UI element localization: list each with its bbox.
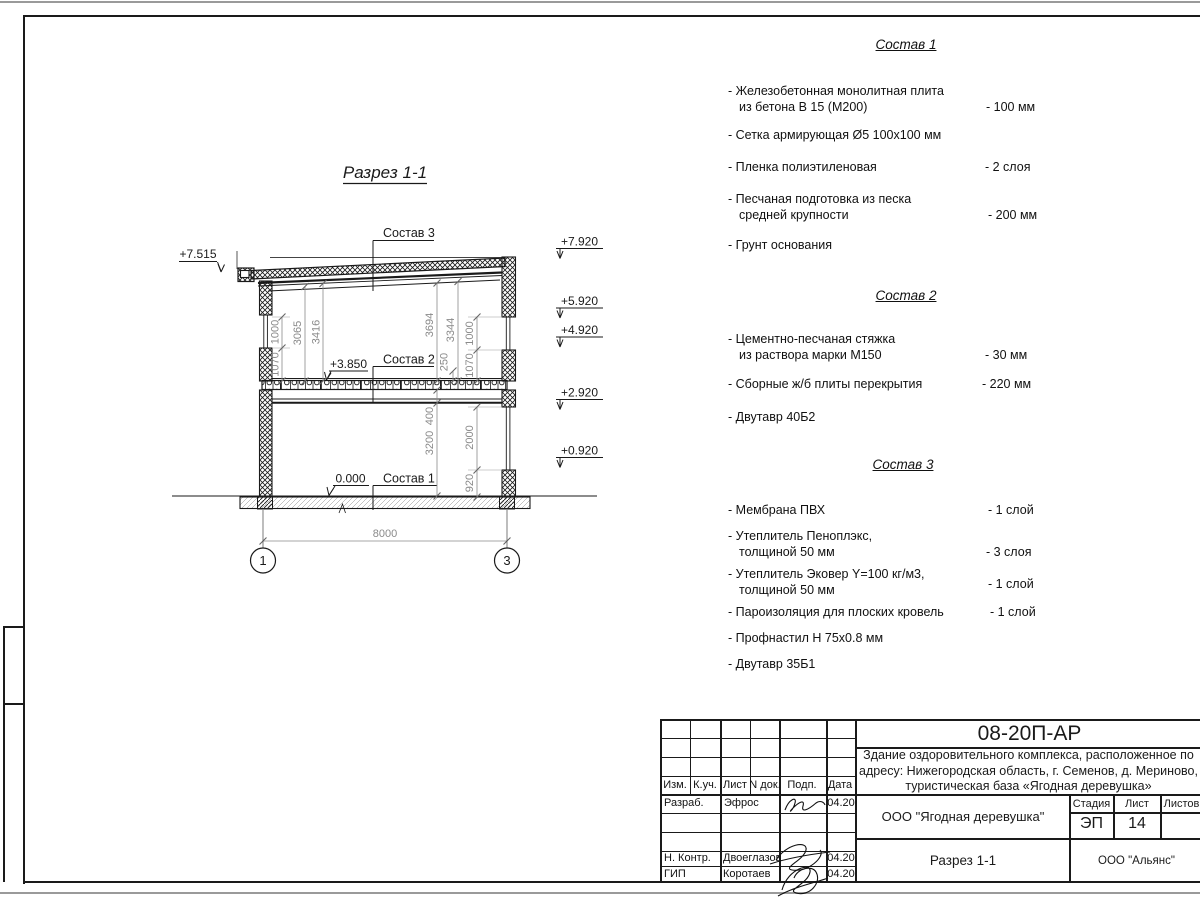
elev-4920: +4.920 (561, 323, 598, 337)
list-item: - Цементно-песчаная стяжка (728, 332, 895, 346)
list-item: - Песчаная подготовка из песка (728, 192, 911, 206)
elev-2920: +2.920 (561, 386, 598, 400)
list-item: средней крупности (739, 208, 849, 222)
sheet-label: Лист (1114, 798, 1160, 810)
label-sostav-3: Состав 3 (383, 226, 435, 240)
col-izm: Изм. (663, 779, 687, 791)
date-razrab: 04.20 (827, 797, 855, 809)
list-item-value: - 3 слоя (986, 545, 1031, 559)
list-item-value: - 1 слой (990, 605, 1036, 619)
list-item: толщиной 50 мм (739, 583, 835, 597)
project-line-3: туристическая база «Ягодная деревушка» (691, 779, 1200, 793)
svg-text:250: 250 (439, 353, 451, 371)
svg-text:3694: 3694 (424, 313, 436, 337)
elev-zero: 0.000 (335, 472, 365, 486)
list-item: - Железобетонная монолитная плита (728, 84, 944, 98)
list-item-value: - 1 слой (988, 503, 1034, 517)
list-item-value: - 220 мм (982, 377, 1031, 391)
svg-text:3200: 3200 (424, 431, 436, 455)
sheet-number: 14 (1114, 815, 1160, 833)
right-window-2f (506, 317, 510, 350)
roof (238, 258, 505, 291)
list-item: - Утеплитель Эковер Y=100 кг/м3, (728, 567, 924, 581)
list-item: из раствора марки М150 (739, 348, 882, 362)
role-nkontr: Н. Контр. (664, 852, 711, 864)
list-item-value: - 1 слой (988, 577, 1034, 591)
list-item: - Мембрана ПВХ (728, 503, 825, 517)
composition-2-title: Состав 2 (840, 288, 972, 303)
footing-left (258, 497, 273, 509)
list-item: - Грунт основания (728, 238, 832, 252)
svg-text:1070: 1070 (464, 353, 476, 377)
svg-text:2000: 2000 (464, 425, 476, 449)
list-item: - Сетка армирующая Ø5 100х100 мм (728, 128, 941, 142)
list-item-value: - 200 мм (988, 208, 1037, 222)
svg-text:Разрез 1-1: Разрез 1-1 (343, 163, 427, 182)
svg-text:920: 920 (464, 474, 476, 492)
composition-1-title: Состав 1 (840, 37, 972, 52)
elev-5920: +5.920 (561, 294, 598, 308)
list-item-value: - 100 мм (986, 100, 1035, 114)
role-gip: ГИП (664, 868, 686, 880)
contractor-org: ООО "Альянс" (1071, 855, 1200, 867)
svg-text:8000: 8000 (373, 528, 397, 540)
list-item: - Сборные ж/б плиты перекрытия (728, 377, 922, 391)
composition-3-title: Состав 3 (837, 457, 969, 472)
svg-text:3065: 3065 (292, 321, 304, 345)
drawing-sheet: Разрез 1-1 (0, 0, 1200, 900)
list-item-value: - 30 мм (985, 348, 1027, 362)
role-razrab: Разраб. (664, 797, 704, 809)
signature-razrab (782, 794, 828, 820)
list-item-value: - 2 слоя (985, 160, 1030, 174)
list-item: - Утеплитель Пеноплэкс, (728, 529, 872, 543)
svg-text:3416: 3416 (311, 320, 323, 344)
name-gip: Коротаев (723, 868, 771, 880)
list-item: из бетона В 15 (М200) (739, 100, 867, 114)
footing-right (500, 497, 515, 509)
svg-text:1070: 1070 (270, 352, 282, 376)
right-window-1f (506, 407, 510, 470)
floor-slab-2f (262, 379, 507, 403)
document-code: 08-20П-АР (857, 722, 1200, 746)
sheets-label: Листов (1161, 798, 1200, 810)
list-item: толщиной 50 мм (739, 545, 835, 559)
svg-text:3344: 3344 (445, 318, 457, 342)
elev-0920: +0.920 (561, 444, 598, 458)
drawing-title: Разрез 1-1 (343, 163, 427, 184)
list-item: - Пароизоляция для плоских кровель (728, 605, 944, 619)
elev-7515: +7.515 (179, 247, 216, 261)
project-line-2: адресу: Нижегородская область, г. Семено… (691, 764, 1200, 778)
stage-label: Стадия (1070, 798, 1113, 810)
right-wall (502, 257, 516, 497)
list-item: - Двутавр 35Б1 (728, 657, 815, 671)
client-name: ООО "Ягодная деревушка" (857, 809, 1069, 824)
list-item: - Двутавр 40Б2 (728, 410, 815, 424)
svg-text:1000: 1000 (270, 320, 282, 344)
sheet-title: Разрез 1-1 (857, 853, 1069, 868)
svg-text:1000: 1000 (464, 321, 476, 345)
elev-3850: +3.850 (330, 357, 367, 371)
list-item: - Пленка полиэтиленовая (728, 160, 877, 174)
axis-3: 3 (503, 553, 510, 568)
grid-axes: 1 3 (251, 510, 520, 573)
name-razrab: Эфрос (724, 797, 759, 809)
elev-7920: +7.920 (561, 235, 598, 249)
axis-1: 1 (259, 553, 266, 568)
project-line-1: Здание оздоровительного комплекса, распо… (691, 748, 1200, 762)
label-sostav-2: Состав 2 (383, 353, 435, 367)
list-item: - Профнастил Н 75х0.8 мм (728, 631, 883, 645)
left-window-2f (264, 315, 268, 348)
svg-text:400: 400 (424, 407, 436, 425)
signature-nkontr-gip (768, 838, 834, 898)
label-sostav-1: Состав 1 (383, 472, 435, 486)
stage-value: ЭП (1070, 815, 1113, 833)
ground-slab (172, 496, 597, 513)
